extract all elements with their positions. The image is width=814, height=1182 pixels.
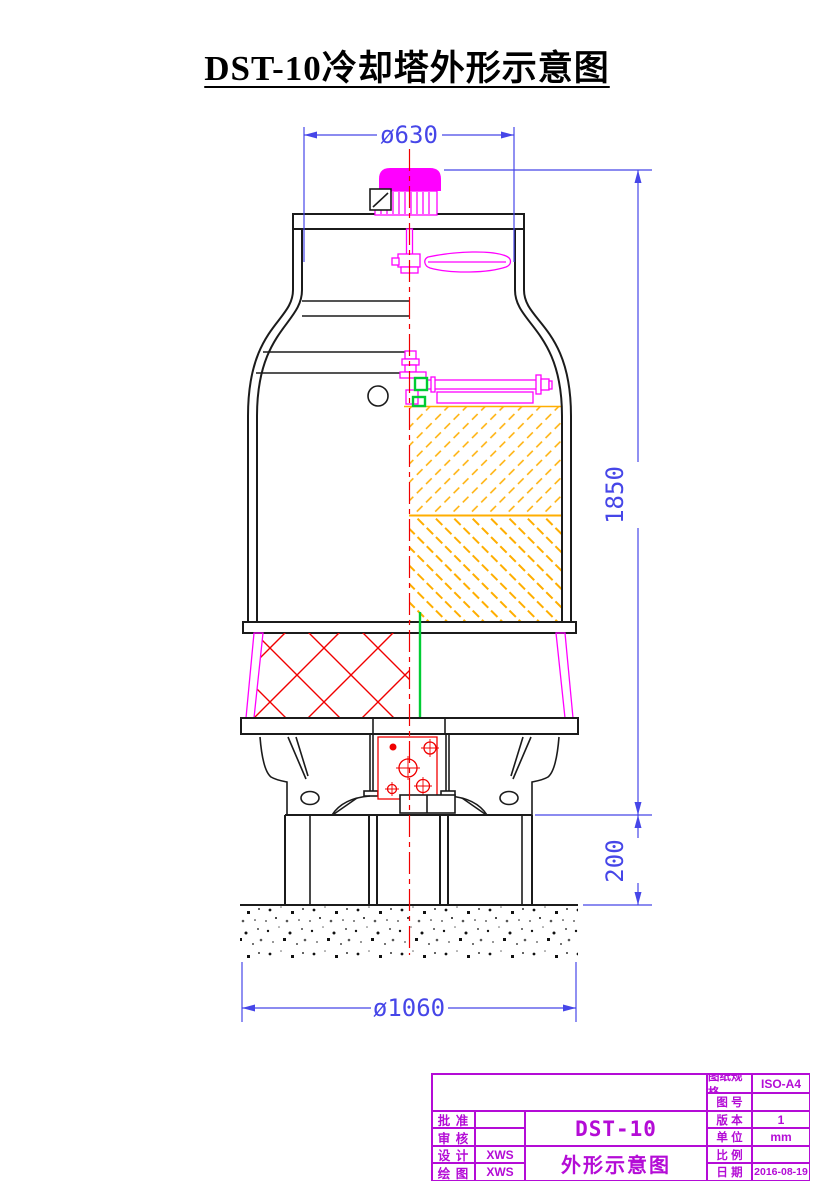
title-block-empty-cell — [432, 1074, 707, 1111]
approve-value — [475, 1111, 525, 1128]
basin-crosshatch — [254, 633, 409, 718]
version-label: 版 本 — [707, 1111, 752, 1128]
paper-size-value: ISO-A4 — [752, 1074, 810, 1093]
approve-label: 批 准 — [432, 1111, 475, 1128]
unit-value: mm — [752, 1128, 810, 1146]
check-value — [475, 1128, 525, 1146]
design-label: 设 计 — [432, 1146, 475, 1163]
draft-label: 绘 图 — [432, 1163, 475, 1181]
dim-text-1850: 1850 — [601, 466, 629, 524]
spray-pipe — [427, 380, 538, 389]
model-number: DST-10 — [525, 1111, 707, 1146]
inspection-hole — [368, 386, 388, 406]
dimension-base-height: 200 — [535, 815, 652, 905]
drawing-sheet: DST-10冷却塔外形示意图 — [0, 0, 814, 1182]
drawing-name: 外形示意图 — [525, 1146, 707, 1181]
check-label: 审 核 — [432, 1128, 475, 1146]
title-block: 批 准 审 核 设 计 XWS 绘 图 XWS DST-10 外形示意图 图纸规… — [431, 1073, 810, 1181]
scale-label: 比 例 — [707, 1146, 752, 1163]
dim-text-200: 200 — [601, 839, 629, 882]
scale-value — [752, 1146, 810, 1163]
date-value: 2016-08-19 — [752, 1163, 810, 1181]
design-value: XWS — [475, 1146, 525, 1163]
dimension-bottom-diameter: ø1060 — [242, 962, 576, 1022]
unit-label: 单 位 — [707, 1128, 752, 1146]
basin-wall-right — [556, 633, 573, 718]
valve-green — [415, 378, 427, 390]
water-distributor — [400, 351, 552, 406]
cooling-tower-drawing: ø630 1850 200 ø — [0, 0, 814, 1182]
version-value: 1 — [752, 1111, 810, 1128]
paper-size-label: 图纸规格 — [707, 1074, 752, 1093]
fill-pack-hatch — [404, 407, 562, 623]
draft-value: XWS — [475, 1163, 525, 1181]
drawing-no-value — [752, 1093, 810, 1111]
date-label: 日 期 — [707, 1163, 752, 1181]
dim-text-630: ø630 — [380, 121, 438, 149]
drawing-no-label: 图 号 — [707, 1093, 752, 1111]
fan-deck — [293, 214, 524, 229]
motor — [370, 168, 441, 257]
dim-text-1060: ø1060 — [373, 994, 445, 1022]
base-columns — [285, 815, 532, 905]
lower-pipe — [437, 392, 533, 403]
